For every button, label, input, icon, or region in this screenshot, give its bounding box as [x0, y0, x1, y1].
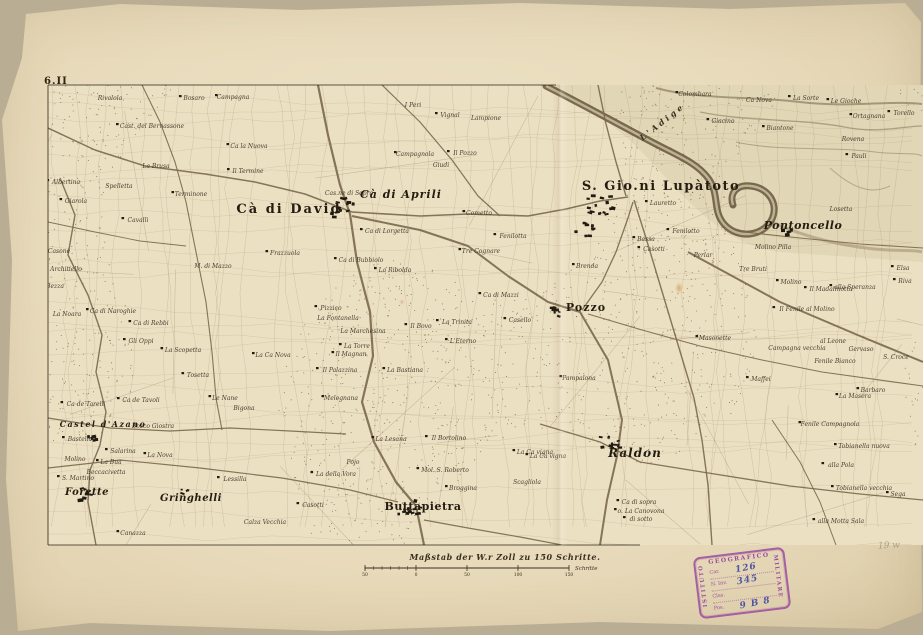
- stipple-dot: [478, 324, 479, 325]
- stipple-dot: [360, 376, 361, 377]
- building-block: [116, 123, 119, 125]
- stipple-dot: [595, 257, 596, 258]
- map-label-minor: M. di Mazzo: [193, 263, 232, 270]
- stipple-dot: [340, 432, 341, 433]
- stipple-dot: [625, 159, 626, 160]
- stipple-dot: [667, 236, 668, 237]
- building-block: [504, 317, 507, 319]
- stipple-dot: [77, 92, 78, 93]
- stipple-dot: [123, 100, 124, 101]
- stipple-dot: [602, 370, 603, 371]
- stipple-dot: [347, 494, 348, 495]
- stipple-dot: [319, 322, 320, 323]
- stipple-dot: [519, 384, 520, 385]
- stipple-dot: [595, 328, 596, 329]
- stipple-dot: [65, 381, 66, 382]
- stipple-dot: [335, 405, 336, 406]
- map-label-minor: di sotto: [630, 516, 653, 523]
- stipple-dot: [621, 110, 622, 111]
- stipple-dot: [500, 305, 501, 306]
- map-label-minor: La Trinita: [441, 319, 472, 326]
- stipple-dot: [412, 277, 413, 278]
- stipple-dot: [441, 490, 442, 491]
- map-label-minor: Mol. S. Roberto: [420, 467, 469, 474]
- stipple-dot: [433, 319, 434, 320]
- map-label-minor: Il Termine: [231, 168, 264, 175]
- stipple-dot: [49, 259, 50, 260]
- stipple-dot: [143, 113, 144, 114]
- stipple-dot: [691, 285, 692, 286]
- stipple-dot: [712, 92, 713, 93]
- map-label-minor: La Ca vigna: [529, 453, 567, 460]
- stipple-dot: [559, 388, 560, 389]
- stipple-dot: [603, 298, 604, 299]
- stipple-dot: [116, 136, 117, 137]
- stipple-dot: [674, 273, 675, 274]
- stipple-dot: [683, 101, 684, 102]
- stipple-dot: [636, 461, 637, 462]
- stipple-dot: [526, 386, 527, 387]
- building-block: [445, 485, 448, 487]
- stipple-dot: [684, 330, 685, 331]
- stipple-dot: [505, 352, 506, 353]
- stipple-dot: [65, 259, 66, 260]
- stipple-dot: [396, 286, 397, 287]
- stipple-dot: [87, 245, 88, 246]
- stipple-dot: [918, 393, 919, 394]
- stipple-dot: [100, 228, 101, 229]
- stipple-dot: [633, 289, 634, 290]
- stipple-dot: [652, 85, 653, 86]
- stipple-dot: [642, 161, 643, 162]
- stipple-dot: [291, 376, 292, 377]
- building-block: [592, 229, 594, 231]
- stipple-dot: [744, 132, 745, 133]
- stipple-dot: [82, 156, 83, 157]
- building-block: [804, 286, 807, 288]
- stipple-dot: [457, 369, 458, 370]
- stipple-dot: [389, 277, 390, 278]
- stipple-dot: [100, 367, 101, 368]
- stipple-dot: [515, 426, 516, 427]
- stipple-dot: [415, 273, 416, 274]
- stipple-dot: [351, 432, 352, 433]
- building-block: [179, 95, 182, 97]
- stipple-dot: [679, 451, 680, 452]
- building-block: [645, 200, 648, 202]
- stipple-dot: [707, 290, 708, 291]
- stipple-dot: [410, 303, 411, 304]
- map-label-minor: Il Fenile al Molino: [778, 306, 835, 313]
- building-block: [513, 449, 516, 451]
- stipple-dot: [491, 430, 492, 431]
- building-block: [297, 502, 300, 504]
- stipple-dot: [382, 486, 383, 487]
- stipple-dot: [532, 386, 533, 387]
- map-plate: RivalolaBosaroCampagnaCast. del Bernasso…: [0, 0, 923, 635]
- stipple-dot: [349, 540, 350, 541]
- scale-caption: Maßstab der W.r Zoll zu 150 Schritte.: [350, 552, 660, 562]
- stipple-dot: [505, 417, 506, 418]
- stipple-dot: [125, 344, 126, 345]
- stipple-dot: [749, 125, 750, 126]
- stipple-dot: [636, 161, 637, 162]
- stipple-dot: [103, 139, 104, 140]
- stipple-dot: [456, 448, 457, 449]
- map-label-minor: S. Croce: [883, 354, 909, 361]
- stipple-dot: [117, 380, 118, 381]
- stipple-dot: [497, 364, 498, 365]
- building-block: [332, 351, 335, 353]
- stipple-dot: [671, 378, 672, 379]
- stipple-dot: [684, 144, 685, 145]
- stipple-dot: [110, 343, 111, 344]
- stipple-dot: [702, 284, 703, 285]
- stipple-dot: [690, 199, 691, 200]
- stipple-dot: [387, 419, 388, 420]
- map-label-minor: Casello: [509, 317, 532, 324]
- stipple-dot: [63, 155, 64, 156]
- stipple-dot: [337, 326, 338, 327]
- stipple-dot: [431, 339, 432, 340]
- stipple-dot: [294, 452, 295, 453]
- building-block: [117, 530, 120, 532]
- building-block: [181, 489, 183, 491]
- stipple-dot: [370, 444, 371, 445]
- map-label-minor: Bastello: [67, 436, 93, 443]
- stipple-dot: [76, 281, 77, 282]
- stipple-dot: [640, 96, 641, 97]
- stipple-dot: [671, 363, 672, 364]
- stipple-dot: [495, 300, 496, 301]
- stipple-dot: [703, 240, 704, 241]
- stipple-dot: [661, 336, 662, 337]
- stamp-word-istituto: ISTITUTO: [698, 564, 709, 607]
- stipple-dot: [673, 255, 674, 256]
- stipple-dot: [116, 397, 117, 398]
- stipple-dot: [644, 195, 645, 196]
- stipple-dot: [636, 344, 637, 345]
- stipple-dot: [368, 313, 369, 314]
- stipple-dot: [696, 416, 697, 417]
- stipple-dot: [682, 306, 683, 307]
- stipple-dot: [645, 298, 646, 299]
- stipple-dot: [915, 431, 916, 432]
- stipple-dot: [52, 124, 53, 125]
- stipple-dot: [361, 523, 362, 524]
- stipple-dot: [536, 376, 537, 377]
- stipple-dot: [343, 483, 344, 484]
- stipple-dot: [729, 402, 730, 403]
- stipple-dot: [633, 419, 634, 420]
- stipple-dot: [432, 453, 433, 454]
- stipple-dot: [433, 351, 434, 352]
- stipple-dot: [76, 209, 77, 210]
- map-label-minor: Bigona: [232, 405, 255, 412]
- stipple-dot: [737, 107, 738, 108]
- stipple-dot: [52, 246, 53, 247]
- stipple-dot: [373, 303, 374, 304]
- stipple-dot: [711, 306, 712, 307]
- stipple-dot: [657, 309, 658, 310]
- stipple-dot: [402, 481, 403, 482]
- stipple-dot: [704, 414, 705, 415]
- stipple-dot: [404, 543, 405, 544]
- stipple-dot: [356, 309, 357, 310]
- stipple-dot: [343, 524, 344, 525]
- stipple-dot: [110, 340, 111, 341]
- scale-tick-label: 50: [464, 572, 470, 577]
- stipple-dot: [628, 323, 629, 324]
- stipple-dot: [602, 272, 603, 273]
- stipple-dot: [583, 396, 584, 397]
- map-label-minor: La della Vora: [315, 471, 356, 478]
- map-label-minor: Ca di Mazzi: [483, 292, 519, 299]
- stipple-dot: [715, 352, 716, 353]
- stipple-dot: [354, 280, 355, 281]
- map-label-minor: Torello: [893, 110, 914, 117]
- stipple-dot: [358, 498, 359, 499]
- stipple-dot: [94, 333, 95, 334]
- stipple-dot: [684, 118, 685, 119]
- stipple-dot: [331, 421, 332, 422]
- stipple-dot: [388, 341, 389, 342]
- building-block: [57, 475, 60, 477]
- stipple-dot: [328, 313, 329, 314]
- stipple-dot: [447, 385, 448, 386]
- stipple-dot: [433, 449, 434, 450]
- stipple-dot: [643, 342, 644, 343]
- stipple-dot: [725, 231, 726, 232]
- stipple-dot: [475, 332, 476, 333]
- stipple-dot: [715, 126, 716, 127]
- stipple-dot: [679, 164, 680, 165]
- stipple-dot: [641, 110, 642, 111]
- stipple-dot: [686, 275, 687, 276]
- stipple-dot: [704, 250, 705, 251]
- building-block: [352, 202, 355, 205]
- stipple-dot: [740, 393, 741, 394]
- stipple-dot: [614, 426, 615, 427]
- stipple-dot: [912, 351, 913, 352]
- stipple-dot: [458, 419, 459, 420]
- stipple-dot: [62, 94, 63, 95]
- stipple-dot: [112, 167, 113, 168]
- stipple-dot: [73, 110, 74, 111]
- stipple-dot: [314, 525, 315, 526]
- stipple-dot: [483, 381, 484, 382]
- building-block: [383, 367, 386, 369]
- stipple-dot: [93, 272, 94, 273]
- stipple-dot: [135, 134, 136, 135]
- stipple-dot: [340, 383, 341, 384]
- stipple-dot: [701, 376, 702, 377]
- stipple-dot: [50, 399, 51, 400]
- stipple-dot: [369, 277, 370, 278]
- stipple-dot: [709, 85, 710, 86]
- stipple-dot: [688, 301, 689, 302]
- stipple-dot: [616, 317, 617, 318]
- stipple-dot: [741, 109, 742, 110]
- stipple-dot: [774, 98, 775, 99]
- stipple-dot: [663, 370, 664, 371]
- stipple-dot: [375, 367, 376, 368]
- stipple-dot: [625, 230, 626, 231]
- stipple-dot: [407, 386, 408, 387]
- stipple-dot: [376, 411, 377, 412]
- stipple-dot: [455, 308, 456, 309]
- stipple-dot: [101, 216, 102, 217]
- stipple-dot: [345, 500, 346, 501]
- stamp-fields: Car. 126 N. Inv. 345 Clas. Pos. 9 B 8: [709, 560, 778, 614]
- stipple-dot: [52, 146, 53, 147]
- stipple-dot: [437, 478, 438, 479]
- stipple-dot: [58, 403, 59, 404]
- stipple-dot: [742, 288, 743, 289]
- stipple-dot: [441, 345, 442, 346]
- stipple-dot: [627, 396, 628, 397]
- stipple-dot: [602, 358, 603, 359]
- stipple-dot: [332, 423, 333, 424]
- stipple-dot: [311, 533, 312, 534]
- stipple-dot: [714, 403, 715, 404]
- map-label-minor: Fenilotta: [498, 233, 527, 240]
- stipple-dot: [666, 126, 667, 127]
- stipple-dot: [432, 271, 433, 272]
- stipple-dot: [441, 425, 442, 426]
- stipple-dot: [54, 91, 55, 92]
- map-label-minor: La Fontanella: [316, 315, 359, 322]
- stipple-dot: [619, 312, 620, 313]
- stipple-dot: [383, 278, 384, 279]
- stipple-dot: [561, 409, 562, 410]
- stipple-dot: [548, 408, 549, 409]
- stipple-dot: [399, 429, 400, 430]
- stipple-dot: [312, 370, 313, 371]
- stipple-dot: [566, 274, 567, 275]
- stipple-dot: [740, 91, 741, 92]
- stipple-dot: [78, 395, 79, 396]
- stipple-dot: [304, 356, 305, 357]
- stipple-dot: [284, 392, 285, 393]
- stipple-dot: [687, 317, 688, 318]
- stipple-dot: [97, 299, 98, 300]
- stipple-dot: [101, 105, 102, 106]
- stipple-dot: [696, 346, 697, 347]
- map-label-minor: Fenilotto: [671, 228, 700, 235]
- stipple-dot: [88, 393, 89, 394]
- stipple-dot: [660, 373, 661, 374]
- map-label-minor: Casotti: [643, 246, 665, 253]
- stipple-dot: [310, 459, 311, 460]
- stipple-dot: [629, 97, 630, 98]
- stipple-dot: [64, 278, 65, 279]
- stipple-dot: [317, 450, 318, 451]
- stipple-dot: [442, 303, 443, 304]
- stipple-dot: [683, 115, 684, 116]
- stipple-dot: [296, 356, 297, 357]
- stipple-dot: [456, 465, 457, 466]
- map-label-minor: La Lesana: [374, 436, 407, 443]
- stipple-dot: [359, 537, 360, 538]
- stipple-dot: [81, 186, 82, 187]
- stipple-dot: [54, 219, 55, 220]
- stipple-dot: [670, 329, 671, 330]
- stipple-dot: [478, 370, 479, 371]
- stipple-dot: [98, 181, 99, 182]
- stipple-dot: [714, 314, 715, 315]
- stipple-dot: [638, 207, 639, 208]
- map-label-minor: Tosetta: [187, 372, 210, 379]
- stipple-dot: [697, 389, 698, 390]
- stipple-dot: [308, 386, 309, 387]
- building-block: [144, 452, 147, 454]
- stipple-dot: [671, 381, 672, 382]
- stipple-dot: [93, 375, 94, 376]
- stipple-dot: [917, 92, 918, 93]
- stipple-dot: [99, 360, 100, 361]
- stipple-dot: [685, 122, 686, 123]
- stipple-dot: [637, 256, 638, 257]
- stipple-dot: [324, 323, 325, 324]
- building-block: [417, 467, 420, 469]
- stipple-dot: [463, 447, 464, 448]
- istituto-geografico-militare-stamp: GEOGRAFICO ISTITUTO MILITARE Car. 126 N.…: [693, 547, 792, 620]
- building-block: [827, 98, 830, 100]
- map-label-minor: La Bastiana: [386, 367, 423, 374]
- stipple-dot: [389, 422, 390, 423]
- stipple-dot: [758, 121, 759, 122]
- stipple-dot: [644, 197, 645, 198]
- stipple-dot: [506, 376, 507, 377]
- stipple-dot: [655, 377, 656, 378]
- stipple-dot: [681, 235, 682, 236]
- stipple-dot: [708, 223, 709, 224]
- stipple-dot: [687, 254, 688, 255]
- building-block: [591, 194, 596, 197]
- map-label-minor: Giacino: [711, 118, 734, 125]
- stipple-dot: [657, 170, 658, 171]
- stipple-dot: [321, 342, 322, 343]
- building-block: [617, 499, 620, 501]
- stipple-dot: [382, 432, 383, 433]
- stipple-dot: [719, 176, 720, 177]
- stipple-dot: [749, 371, 750, 372]
- map-label-minor: Giudi: [433, 162, 449, 169]
- stipple-dot: [371, 286, 372, 287]
- stipple-dot: [409, 285, 410, 286]
- stipple-dot: [741, 294, 742, 295]
- stipple-dot: [433, 418, 434, 419]
- map-label-minor: Frazzuola: [269, 250, 300, 257]
- stipple-dot: [624, 357, 625, 358]
- stipple-dot: [162, 93, 163, 94]
- map-label-minor: Giarola: [65, 198, 88, 205]
- stipple-dot: [713, 237, 714, 238]
- map-label-minor: Ca di Bubbiolo: [339, 257, 384, 264]
- stipple-dot: [636, 202, 637, 203]
- scale-tick-label: 100: [514, 572, 523, 577]
- stipple-dot: [321, 430, 322, 431]
- stipple-dot: [709, 386, 710, 387]
- stipple-dot: [686, 382, 687, 383]
- stipple-dot: [425, 334, 426, 335]
- stipple-dot: [733, 253, 734, 254]
- stipple-dot: [712, 260, 713, 261]
- stipple-dot: [370, 479, 371, 480]
- stipple-dot: [473, 368, 474, 369]
- stipple-dot: [100, 132, 101, 133]
